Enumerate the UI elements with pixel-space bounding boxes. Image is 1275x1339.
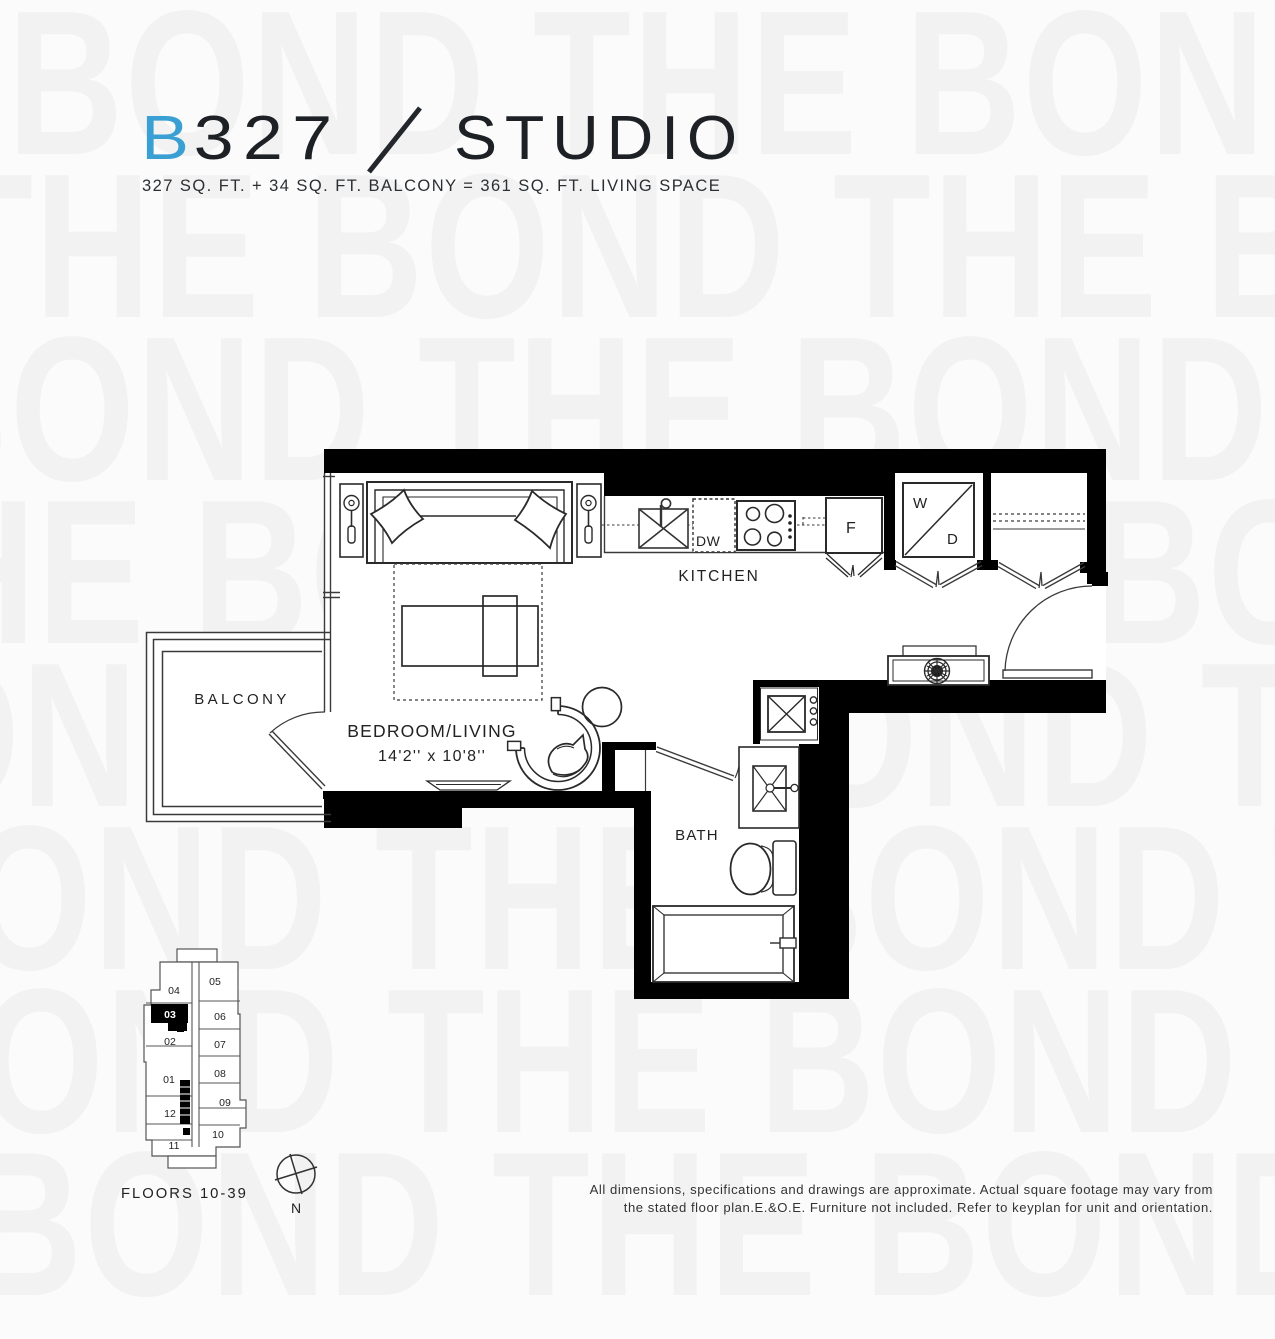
svg-text:12: 12 xyxy=(164,1108,176,1120)
svg-text:06: 06 xyxy=(214,1011,226,1023)
svg-text:DW: DW xyxy=(696,533,721,549)
svg-text:04: 04 xyxy=(168,985,180,997)
svg-text:W: W xyxy=(913,495,928,512)
svg-text:BATH: BATH xyxy=(675,827,719,844)
svg-text:11: 11 xyxy=(169,1140,180,1152)
svg-text:14'2'' x 10'8'': 14'2'' x 10'8'' xyxy=(378,748,486,765)
svg-text:N: N xyxy=(291,1200,301,1216)
svg-text:07: 07 xyxy=(214,1039,226,1051)
svg-text:FLOORS 10-39: FLOORS 10-39 xyxy=(121,1186,248,1202)
svg-text:02: 02 xyxy=(164,1036,176,1048)
svg-text:BALCONY: BALCONY xyxy=(194,691,290,708)
svg-text:F: F xyxy=(846,520,856,537)
svg-text:05: 05 xyxy=(209,976,221,988)
svg-text:KITCHEN: KITCHEN xyxy=(678,568,759,585)
svg-text:D: D xyxy=(947,531,958,548)
svg-text:03: 03 xyxy=(164,1009,176,1021)
svg-text:10: 10 xyxy=(212,1129,224,1141)
svg-text:08: 08 xyxy=(214,1068,226,1080)
svg-text:BEDROOM/LIVING: BEDROOM/LIVING xyxy=(347,721,516,741)
svg-text:09: 09 xyxy=(219,1097,231,1109)
svg-text:01: 01 xyxy=(163,1074,175,1086)
